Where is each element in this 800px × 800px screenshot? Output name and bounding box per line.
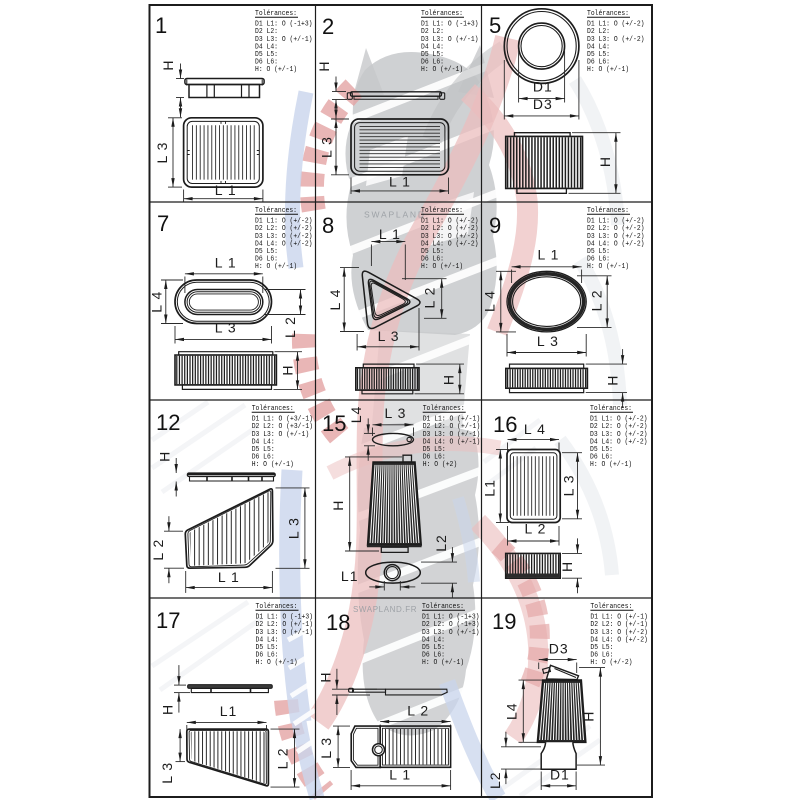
svg-text:17: 17 bbox=[156, 608, 180, 633]
svg-text:H: H bbox=[156, 451, 172, 462]
svg-text:L 3: L 3 bbox=[215, 320, 237, 336]
svg-text:L1: L1 bbox=[482, 479, 498, 497]
svg-text:L 3: L 3 bbox=[378, 328, 400, 344]
svg-text:H: O (+/-1): H: O (+/-1) bbox=[422, 659, 464, 667]
svg-text:L2: L2 bbox=[487, 771, 503, 789]
svg-text:1: 1 bbox=[155, 13, 167, 38]
svg-text:H: H bbox=[441, 374, 457, 385]
svg-text:19: 19 bbox=[492, 609, 516, 634]
svg-text:L4: L4 bbox=[348, 406, 364, 424]
svg-text:L 2: L 2 bbox=[525, 521, 547, 537]
svg-text:16: 16 bbox=[493, 412, 517, 437]
svg-text:L 2: L 2 bbox=[150, 539, 166, 561]
svg-text:5: 5 bbox=[489, 13, 501, 38]
svg-text:D3: D3 bbox=[533, 96, 553, 112]
svg-text:H: H bbox=[597, 156, 613, 167]
svg-text:L 3: L 3 bbox=[159, 762, 175, 784]
svg-text:H: H bbox=[160, 59, 176, 70]
svg-text:L 3: L 3 bbox=[385, 405, 407, 421]
svg-text:L1: L1 bbox=[341, 568, 359, 584]
svg-text:SWAPLAND: SWAPLAND bbox=[364, 210, 426, 220]
svg-text:L 1: L 1 bbox=[379, 226, 401, 242]
svg-text:9: 9 bbox=[489, 213, 501, 238]
svg-text:L 1: L 1 bbox=[215, 255, 237, 271]
svg-text:H: O (+/-1): H: O (+/-1) bbox=[255, 66, 297, 74]
svg-text:H: O (+/-1): H: O (+/-1) bbox=[252, 461, 294, 469]
svg-text:15: 15 bbox=[322, 411, 346, 436]
svg-text:12: 12 bbox=[156, 410, 180, 435]
svg-text:H: H bbox=[581, 711, 597, 722]
svg-text:H: H bbox=[316, 60, 332, 71]
svg-text:H: O (+/-1): H: O (+/-1) bbox=[587, 66, 629, 74]
svg-text:H: O (+/-2): H: O (+/-2) bbox=[590, 659, 632, 667]
svg-text:L 1: L 1 bbox=[218, 569, 240, 585]
svg-text:H: H bbox=[317, 671, 333, 682]
svg-text:L4: L4 bbox=[503, 702, 519, 720]
svg-text:H: O (+/-1): H: O (+/-1) bbox=[590, 461, 632, 469]
svg-text:H: O (+/-1): H: O (+/-1) bbox=[421, 263, 463, 271]
svg-text:L 3: L 3 bbox=[561, 474, 577, 496]
svg-text:H: O (+/-1): H: O (+/-1) bbox=[421, 66, 463, 74]
svg-text:H: H bbox=[160, 704, 176, 715]
svg-text:H: H bbox=[605, 375, 621, 386]
svg-text:L 1: L 1 bbox=[389, 767, 411, 783]
svg-text:H: O (+/-1): H: O (+/-1) bbox=[256, 659, 298, 667]
svg-text:L 4: L 4 bbox=[482, 290, 498, 312]
svg-text:L1: L1 bbox=[220, 703, 238, 719]
svg-text:L 3: L 3 bbox=[154, 142, 170, 164]
svg-text:H: H bbox=[280, 364, 296, 375]
svg-text:L 4: L 4 bbox=[148, 291, 164, 313]
svg-text:18: 18 bbox=[326, 610, 350, 635]
svg-text:L 2: L 2 bbox=[275, 747, 291, 769]
svg-text:SWAPLAND.FR: SWAPLAND.FR bbox=[353, 605, 417, 614]
svg-text:H: H bbox=[330, 500, 346, 511]
svg-text:L 3: L 3 bbox=[318, 737, 334, 759]
svg-text:H: O (+/-1): H: O (+/-1) bbox=[255, 263, 297, 271]
svg-text:L 2: L 2 bbox=[407, 703, 429, 719]
svg-text:7: 7 bbox=[157, 211, 169, 236]
svg-text:D1: D1 bbox=[533, 79, 553, 95]
svg-text:D1: D1 bbox=[550, 767, 570, 783]
svg-text:L2: L2 bbox=[433, 534, 449, 552]
svg-text:2: 2 bbox=[322, 14, 334, 39]
svg-text:L 2: L 2 bbox=[422, 287, 438, 309]
svg-text:8: 8 bbox=[322, 213, 334, 238]
svg-text:L 4: L 4 bbox=[327, 289, 343, 311]
svg-text:L 2: L 2 bbox=[589, 289, 605, 311]
svg-text:L 3: L 3 bbox=[537, 333, 559, 349]
svg-text:H: O (+/-1): H: O (+/-1) bbox=[587, 263, 629, 271]
svg-text:H: O (+2): H: O (+2) bbox=[423, 461, 458, 469]
svg-text:L 3: L 3 bbox=[286, 517, 302, 539]
svg-text:L 1: L 1 bbox=[389, 174, 411, 190]
svg-text:H: H bbox=[559, 561, 575, 572]
svg-text:L 2: L 2 bbox=[282, 316, 298, 338]
svg-text:L 3: L 3 bbox=[319, 136, 335, 158]
svg-text:L 4: L 4 bbox=[524, 421, 546, 437]
svg-text:D3: D3 bbox=[549, 641, 569, 657]
svg-text:L 1: L 1 bbox=[215, 182, 237, 198]
svg-text:L 1: L 1 bbox=[538, 247, 560, 263]
